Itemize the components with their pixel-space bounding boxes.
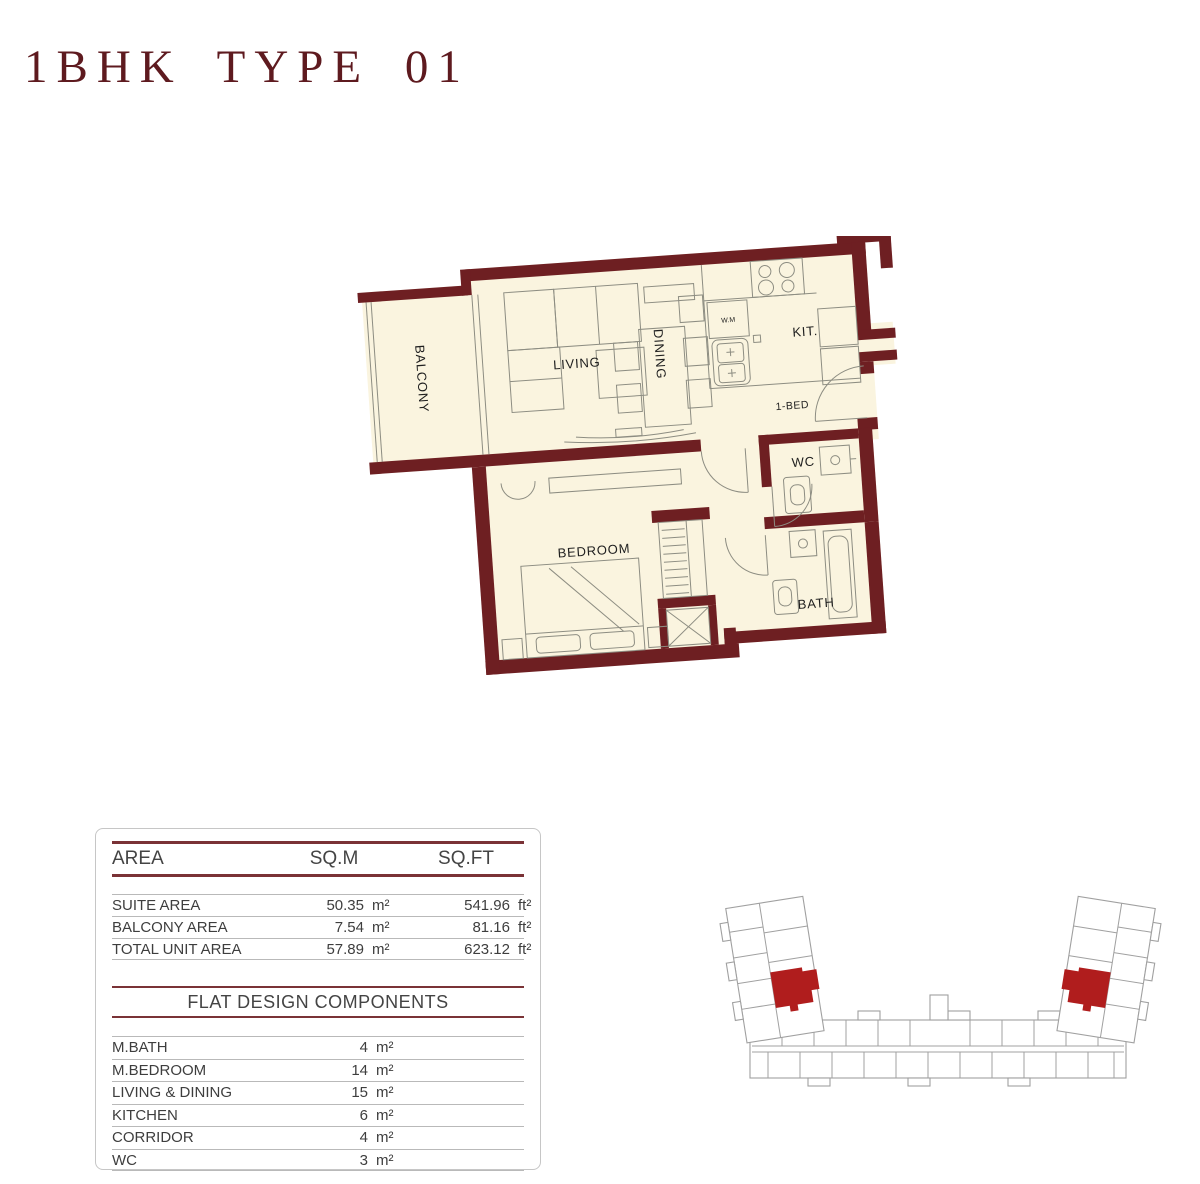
wc-label: WC	[791, 454, 815, 471]
table-row: TOTAL UNIT AREA 57.89 m² 623.12 ft²	[112, 938, 524, 960]
kitchen-label: KIT.	[792, 323, 819, 340]
table-row: LIVING & DINING 15 m²	[112, 1081, 524, 1104]
bath-label: BATH	[797, 595, 835, 613]
col-area: AREA	[112, 848, 260, 870]
key-plan	[708, 892, 1176, 1108]
area-table-rows: SUITE AREA 50.35 m² 541.96 ft² BALCONY A…	[112, 894, 524, 960]
table-row: WC 3 m²	[112, 1149, 524, 1172]
components-table-rows: M.BATH 4 m² M.BEDROOM 14 m² LIVING & DIN…	[112, 1036, 524, 1171]
key-plan-right-wing	[1055, 896, 1163, 1044]
table-row: CORRIDOR 4 m²	[112, 1126, 524, 1149]
table-row: KITCHEN 6 m²	[112, 1104, 524, 1127]
key-plan-left-wing	[718, 896, 826, 1044]
col-sqft: SQ.FT	[408, 848, 524, 870]
wm-label: W.M	[721, 317, 736, 325]
table-row: SUITE AREA 50.35 m² 541.96 ft²	[112, 894, 524, 916]
unit-floor-plan: BALCONY LIVING	[352, 236, 912, 716]
floorplan-sheet: 1BHK TYPE 01	[0, 0, 1200, 1184]
area-table-header: AREA SQ.M SQ.FT	[112, 841, 524, 877]
table-row: M.BATH 4 m²	[112, 1036, 524, 1059]
col-sqm: SQ.M	[260, 848, 408, 870]
area-summary-card: AREA SQ.M SQ.FT SUITE AREA 50.35 m² 541.…	[95, 828, 541, 1170]
entry-label: 1-BED	[775, 399, 809, 413]
table-row: M.BEDROOM 14 m²	[112, 1059, 524, 1082]
table-row: BALCONY AREA 7.54 m² 81.16 ft²	[112, 916, 524, 938]
page-title: 1BHK TYPE 01	[24, 40, 470, 94]
components-table-title: FLAT DESIGN COMPONENTS	[112, 986, 524, 1018]
